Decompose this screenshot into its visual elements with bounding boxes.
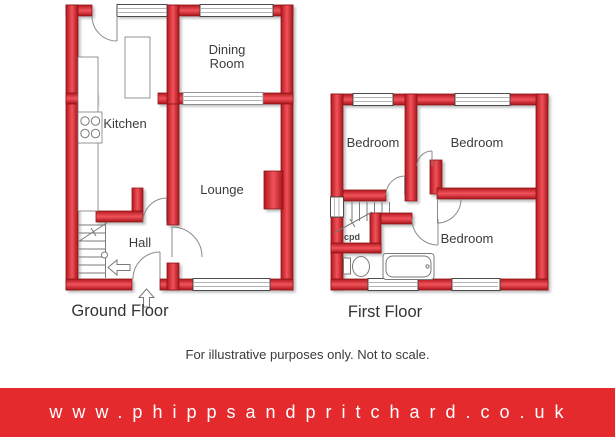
- door-arc: [92, 16, 117, 41]
- chimney-breast: [264, 171, 283, 209]
- window: [331, 197, 344, 217]
- hob-icon: [78, 112, 102, 143]
- room-label-bedroom2: Bedroom: [451, 135, 504, 150]
- room-label-dining-line2: Room: [210, 56, 245, 71]
- door-arc: [133, 252, 160, 279]
- room-label-kitchen: Kitchen: [103, 116, 146, 131]
- room-label-lounge: Lounge: [200, 182, 243, 197]
- door-arc: [386, 176, 405, 195]
- door-arc: [437, 199, 461, 223]
- agency-banner: www.phippsandpritchard.co.uk: [0, 388, 615, 437]
- ground-floor-walls: [66, 5, 293, 290]
- door-arc: [172, 227, 202, 257]
- room-label-cupboard: cpd: [344, 232, 360, 242]
- agency-website-url: www.phippsandpritchard.co.uk: [49, 402, 573, 423]
- door-arc: [412, 219, 438, 245]
- first-floor-title: First Floor: [348, 303, 423, 321]
- first-floor-plan: Bedroom Bedroom Bedroom cpd First Floor: [331, 94, 549, 322]
- window: [368, 279, 418, 291]
- ground-floor-plan: Kitchen Dining Room Lounge Hall Ground F…: [66, 5, 293, 321]
- ground-floor-title: Ground Floor: [71, 302, 169, 320]
- window: [353, 94, 393, 106]
- room-label-bedroom1: Bedroom: [347, 135, 400, 150]
- room-label-hall: Hall: [129, 235, 152, 250]
- window: [200, 5, 273, 17]
- window: [193, 279, 270, 291]
- disclaimer-text: For illustrative purposes only. Not to s…: [0, 347, 615, 362]
- toilet-icon: [344, 257, 370, 277]
- window: [455, 94, 510, 106]
- bath-icon: [383, 254, 434, 280]
- room-label-bedroom3: Bedroom: [441, 231, 494, 246]
- window: [452, 279, 500, 291]
- window: [117, 5, 167, 17]
- door-arc: [143, 198, 167, 222]
- staircase: [78, 222, 108, 278]
- internal-opening: [183, 93, 263, 105]
- room-label-dining-line1: Dining: [209, 42, 246, 57]
- stairs-direction-arrow-icon: [108, 260, 130, 275]
- floorplan-image: Kitchen Dining Room Lounge Hall Ground F…: [0, 0, 615, 391]
